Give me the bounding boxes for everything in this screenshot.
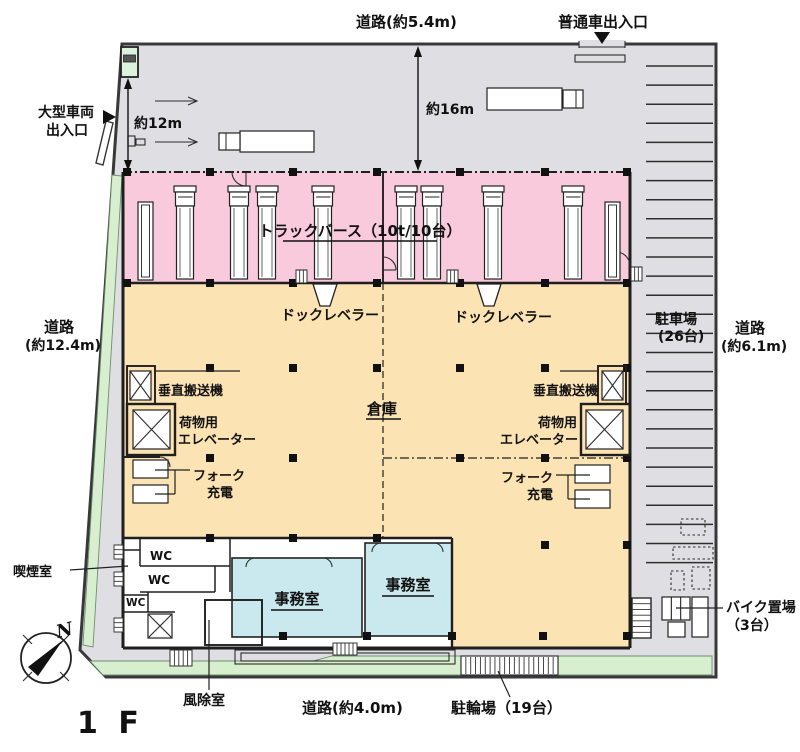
- road-bottom-label: 道路(約4.0m): [302, 699, 403, 717]
- fork-right-label-2: 充電: [527, 487, 553, 503]
- parking-label-2: (26台): [658, 328, 704, 345]
- road-left-label-1: 道路: [44, 318, 75, 336]
- elevator-right-label-2: エレベーター: [500, 433, 578, 448]
- large-vehicle-label-2: 出入口: [46, 122, 88, 139]
- wc-label-2: WC: [148, 573, 170, 587]
- bicycle-label: 駐輪場（19台）: [451, 699, 562, 717]
- storage-box-1: [668, 622, 685, 637]
- dim-16m-label: 約16m: [426, 101, 474, 118]
- fork-left-label-2: 充電: [207, 485, 233, 501]
- entrance-steps-1: [170, 650, 192, 666]
- elevator-right: [581, 404, 630, 455]
- wc-label-1: WC: [150, 549, 172, 563]
- bike-label-2: （3台）: [726, 617, 778, 634]
- gate-panel: [96, 121, 113, 165]
- road-left-label-2: (約12.4m): [25, 337, 101, 354]
- storage-box-2: [692, 597, 708, 637]
- parking-label-1: 駐車場: [655, 311, 697, 328]
- elevator-right-label-1: 荷物用: [537, 415, 577, 431]
- office-left-label: 事務室: [274, 590, 319, 608]
- dock-leveler-left-label: ドックレベラー: [281, 308, 379, 324]
- north-label: N: [53, 618, 77, 643]
- entrance-steps-2: [333, 643, 357, 655]
- truck-top-left: [219, 131, 314, 152]
- office-right-label: 事務室: [385, 576, 430, 594]
- dim-12m-label: 約12m: [134, 115, 182, 132]
- side-gate-box: [631, 267, 642, 281]
- bike-label-1: バイク置場: [726, 599, 796, 616]
- large-vehicle-label-1: 大型車両: [38, 104, 94, 121]
- road-right-label-2: (約6.1m): [721, 338, 787, 355]
- guard-box: [121, 47, 138, 77]
- berth-stair-box-2: [447, 270, 458, 283]
- conveyor-left-label: 垂直搬送機: [158, 383, 223, 399]
- road-top-label: 道路(約5.4m): [356, 13, 457, 31]
- bicycle-hatch: [461, 656, 558, 675]
- service-elevator-small: [148, 614, 172, 638]
- warehouse-label: 倉庫: [366, 400, 397, 418]
- truck-top-right: [487, 88, 583, 110]
- stairs-right: [632, 598, 651, 638]
- wc-label-3: WC: [126, 597, 146, 609]
- berth-stair-box-1: [296, 270, 307, 283]
- fork-left-label-1: フォーク: [193, 469, 245, 484]
- elevator-left-label-1: 荷物用: [178, 415, 218, 431]
- smoking-room-label: 喫煙室: [13, 564, 52, 580]
- fork-right-label-1: フォーク: [501, 471, 553, 486]
- compass: N: [21, 618, 77, 683]
- car-entrance-label: 普通車出入口: [558, 13, 648, 31]
- floor-label: 1 F: [77, 706, 144, 741]
- conveyor-right-label: 垂直搬送機: [533, 383, 598, 399]
- elevator-left: [127, 404, 175, 455]
- floor-plan: N 道路(約5.4m) 普通車出入口 大型車両 出入口 約12m 約16m トラ…: [0, 0, 800, 752]
- elevator-left-label-2: エレベーター: [178, 433, 256, 448]
- dock-leveler-right-label: ドックレベラー: [454, 310, 552, 326]
- windbreak-label: 風除室: [183, 692, 225, 709]
- truck-berth-label: トラックバース（10t/10台）: [259, 222, 462, 240]
- road-right-label-1: 道路: [735, 319, 766, 337]
